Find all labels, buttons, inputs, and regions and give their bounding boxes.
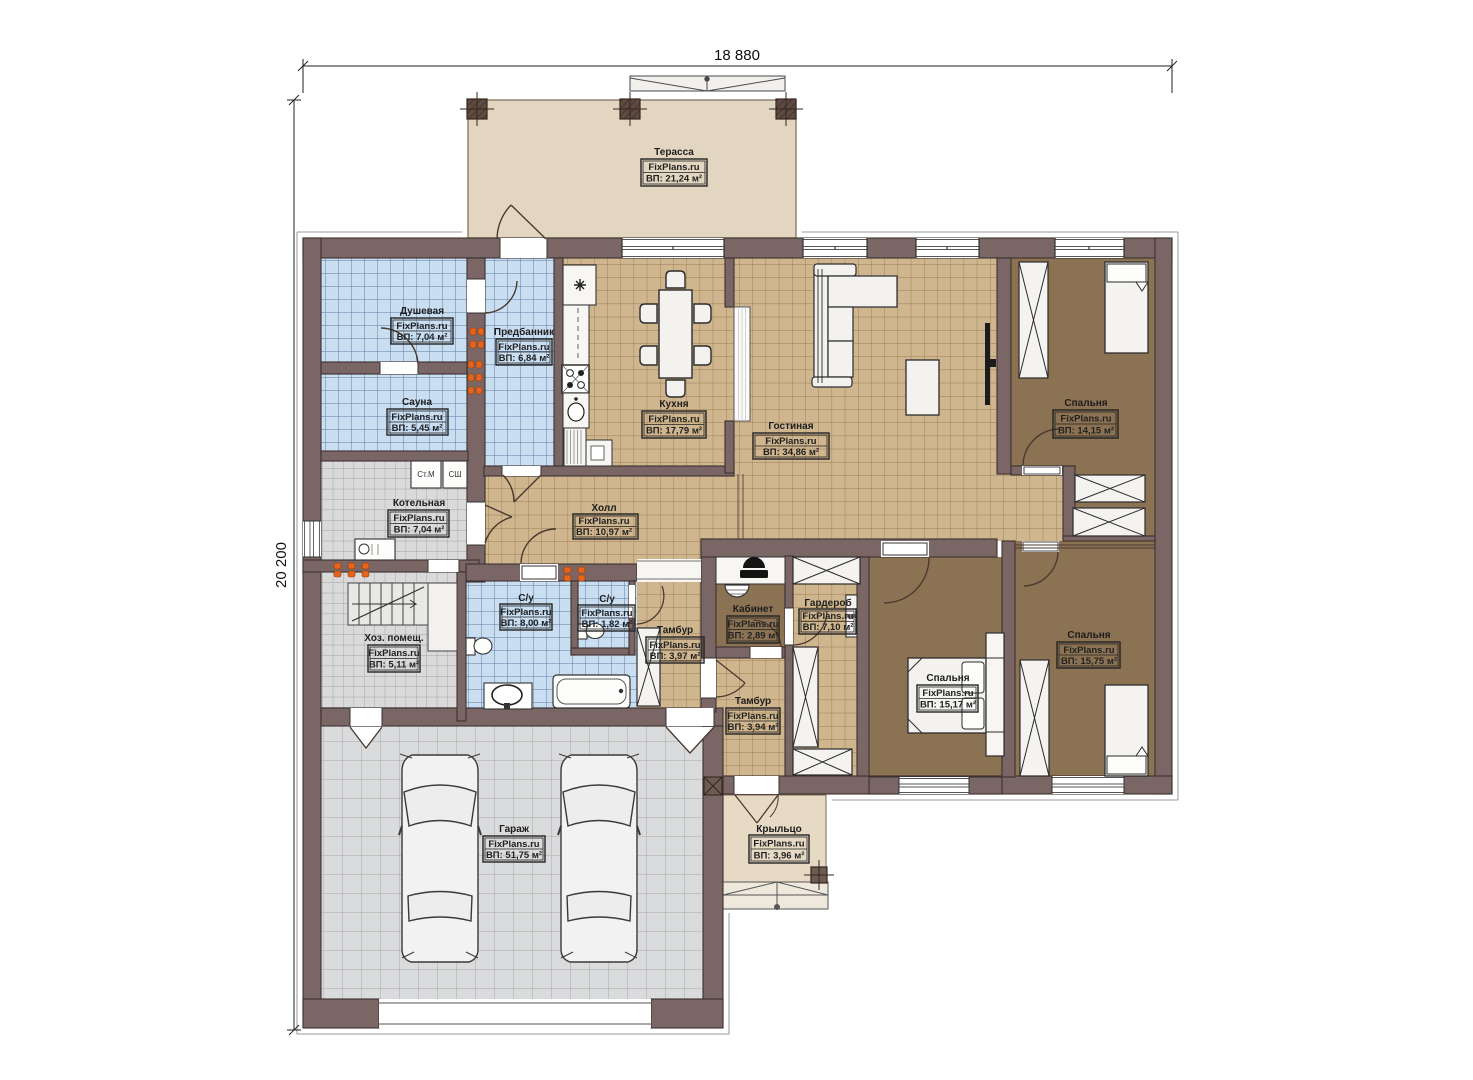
svg-text:Крыльцо: Крыльцо bbox=[756, 824, 802, 835]
svg-text:FixPlans.ru: FixPlans.ru bbox=[1060, 414, 1111, 425]
svg-text:С/у: С/у bbox=[518, 593, 534, 604]
svg-text:FixPlans.ru: FixPlans.ru bbox=[500, 607, 551, 618]
svg-text:FixPlans.ru: FixPlans.ru bbox=[396, 321, 447, 332]
svg-text:FixPlans.ru: FixPlans.ru bbox=[922, 688, 973, 699]
svg-text:ВП: 15,17 м²: ВП: 15,17 м² bbox=[920, 700, 976, 711]
svg-text:ВП: 3,97 м²: ВП: 3,97 м² bbox=[650, 651, 701, 662]
svg-text:Тамбур: Тамбур bbox=[657, 624, 693, 636]
svg-text:Спальня: Спальня bbox=[1067, 630, 1110, 641]
svg-text:ВП: 14,15 м²: ВП: 14,15 м² bbox=[1058, 426, 1114, 437]
svg-text:18 880: 18 880 bbox=[714, 47, 760, 64]
svg-text:FixPlans.ru: FixPlans.ru bbox=[498, 342, 549, 353]
svg-text:FixPlans.ru: FixPlans.ru bbox=[578, 516, 629, 527]
svg-text:ВП: 51,75 м²: ВП: 51,75 м² bbox=[486, 850, 542, 861]
svg-text:ВП: 34,86 м²: ВП: 34,86 м² bbox=[763, 447, 819, 458]
svg-text:Хоз. помещ.: Хоз. помещ. bbox=[364, 633, 423, 644]
svg-text:FixPlans.ru: FixPlans.ru bbox=[649, 640, 700, 651]
svg-text:С/у: С/у bbox=[599, 594, 615, 605]
svg-text:Гостиная: Гостиная bbox=[768, 421, 813, 432]
svg-text:FixPlans.ru: FixPlans.ru bbox=[368, 648, 419, 659]
svg-text:FixPlans.ru: FixPlans.ru bbox=[727, 711, 778, 722]
svg-text:Тамбур: Тамбур bbox=[735, 695, 771, 707]
svg-text:Котельная: Котельная bbox=[393, 498, 446, 509]
svg-text:FixPlans.ru: FixPlans.ru bbox=[753, 839, 804, 850]
svg-text:FixPlans.ru: FixPlans.ru bbox=[727, 619, 778, 630]
svg-text:FixPlans.ru: FixPlans.ru bbox=[581, 608, 632, 619]
svg-text:FixPlans.ru: FixPlans.ru bbox=[393, 513, 444, 524]
svg-text:Спальня: Спальня bbox=[926, 673, 969, 684]
svg-text:ВП: 8,00 м²: ВП: 8,00 м² bbox=[501, 618, 552, 629]
svg-text:FixPlans.ru: FixPlans.ru bbox=[802, 611, 853, 622]
svg-text:Холл: Холл bbox=[591, 503, 616, 514]
svg-text:20 200: 20 200 bbox=[273, 542, 290, 588]
svg-text:ВП: 5,45 м²: ВП: 5,45 м² bbox=[392, 423, 443, 434]
svg-text:ВП: 2,89 м²: ВП: 2,89 м² bbox=[728, 631, 779, 642]
svg-text:ВП: 17,79 м²: ВП: 17,79 м² bbox=[646, 426, 702, 437]
svg-text:Терасса: Терасса bbox=[654, 147, 694, 158]
svg-text:FixPlans.ru: FixPlans.ru bbox=[648, 162, 699, 173]
svg-text:ВП: 3,94 м²: ВП: 3,94 м² bbox=[728, 722, 779, 733]
svg-text:Кухня: Кухня bbox=[659, 399, 688, 410]
svg-text:FixPlans.ru: FixPlans.ru bbox=[765, 436, 816, 447]
svg-text:Гараж: Гараж bbox=[499, 824, 530, 835]
svg-text:Ст.М: Ст.М bbox=[417, 470, 435, 479]
svg-text:FixPlans.ru: FixPlans.ru bbox=[488, 839, 539, 850]
svg-text:FixPlans.ru: FixPlans.ru bbox=[648, 414, 699, 425]
svg-text:ВП: 15,75 м²: ВП: 15,75 м² bbox=[1061, 656, 1117, 667]
svg-text:ВП: 5,11 м²: ВП: 5,11 м² bbox=[369, 660, 419, 671]
svg-text:Спальня: Спальня bbox=[1064, 398, 1107, 409]
svg-text:FixPlans.ru: FixPlans.ru bbox=[391, 412, 442, 423]
svg-text:ВП: 1,82 м²: ВП: 1,82 м² bbox=[582, 619, 633, 630]
svg-text:ВП: 21,24 м²: ВП: 21,24 м² bbox=[646, 174, 702, 185]
svg-text:ВП: 7,04 м²: ВП: 7,04 м² bbox=[394, 525, 445, 536]
svg-text:СШ: СШ bbox=[448, 470, 461, 479]
svg-text:ВП: 7,10 м²: ВП: 7,10 м² bbox=[803, 622, 854, 633]
svg-text:ВП: 10,97 м²: ВП: 10,97 м² bbox=[576, 527, 632, 538]
svg-text:ВП: 6,84 м²: ВП: 6,84 м² bbox=[499, 353, 550, 364]
svg-text:Душевая: Душевая bbox=[400, 306, 444, 317]
svg-text:ВП: 3,96 м²: ВП: 3,96 м² bbox=[754, 851, 805, 862]
svg-text:Сауна: Сауна bbox=[402, 397, 433, 408]
svg-text:FixPlans.ru: FixPlans.ru bbox=[1063, 645, 1114, 656]
svg-text:Гардероб: Гардероб bbox=[804, 597, 851, 609]
svg-text:Кабинет: Кабинет bbox=[733, 603, 774, 615]
svg-text:ВП: 7,04 м²: ВП: 7,04 м² bbox=[397, 332, 448, 343]
svg-text:Предбанник: Предбанник bbox=[494, 326, 555, 338]
